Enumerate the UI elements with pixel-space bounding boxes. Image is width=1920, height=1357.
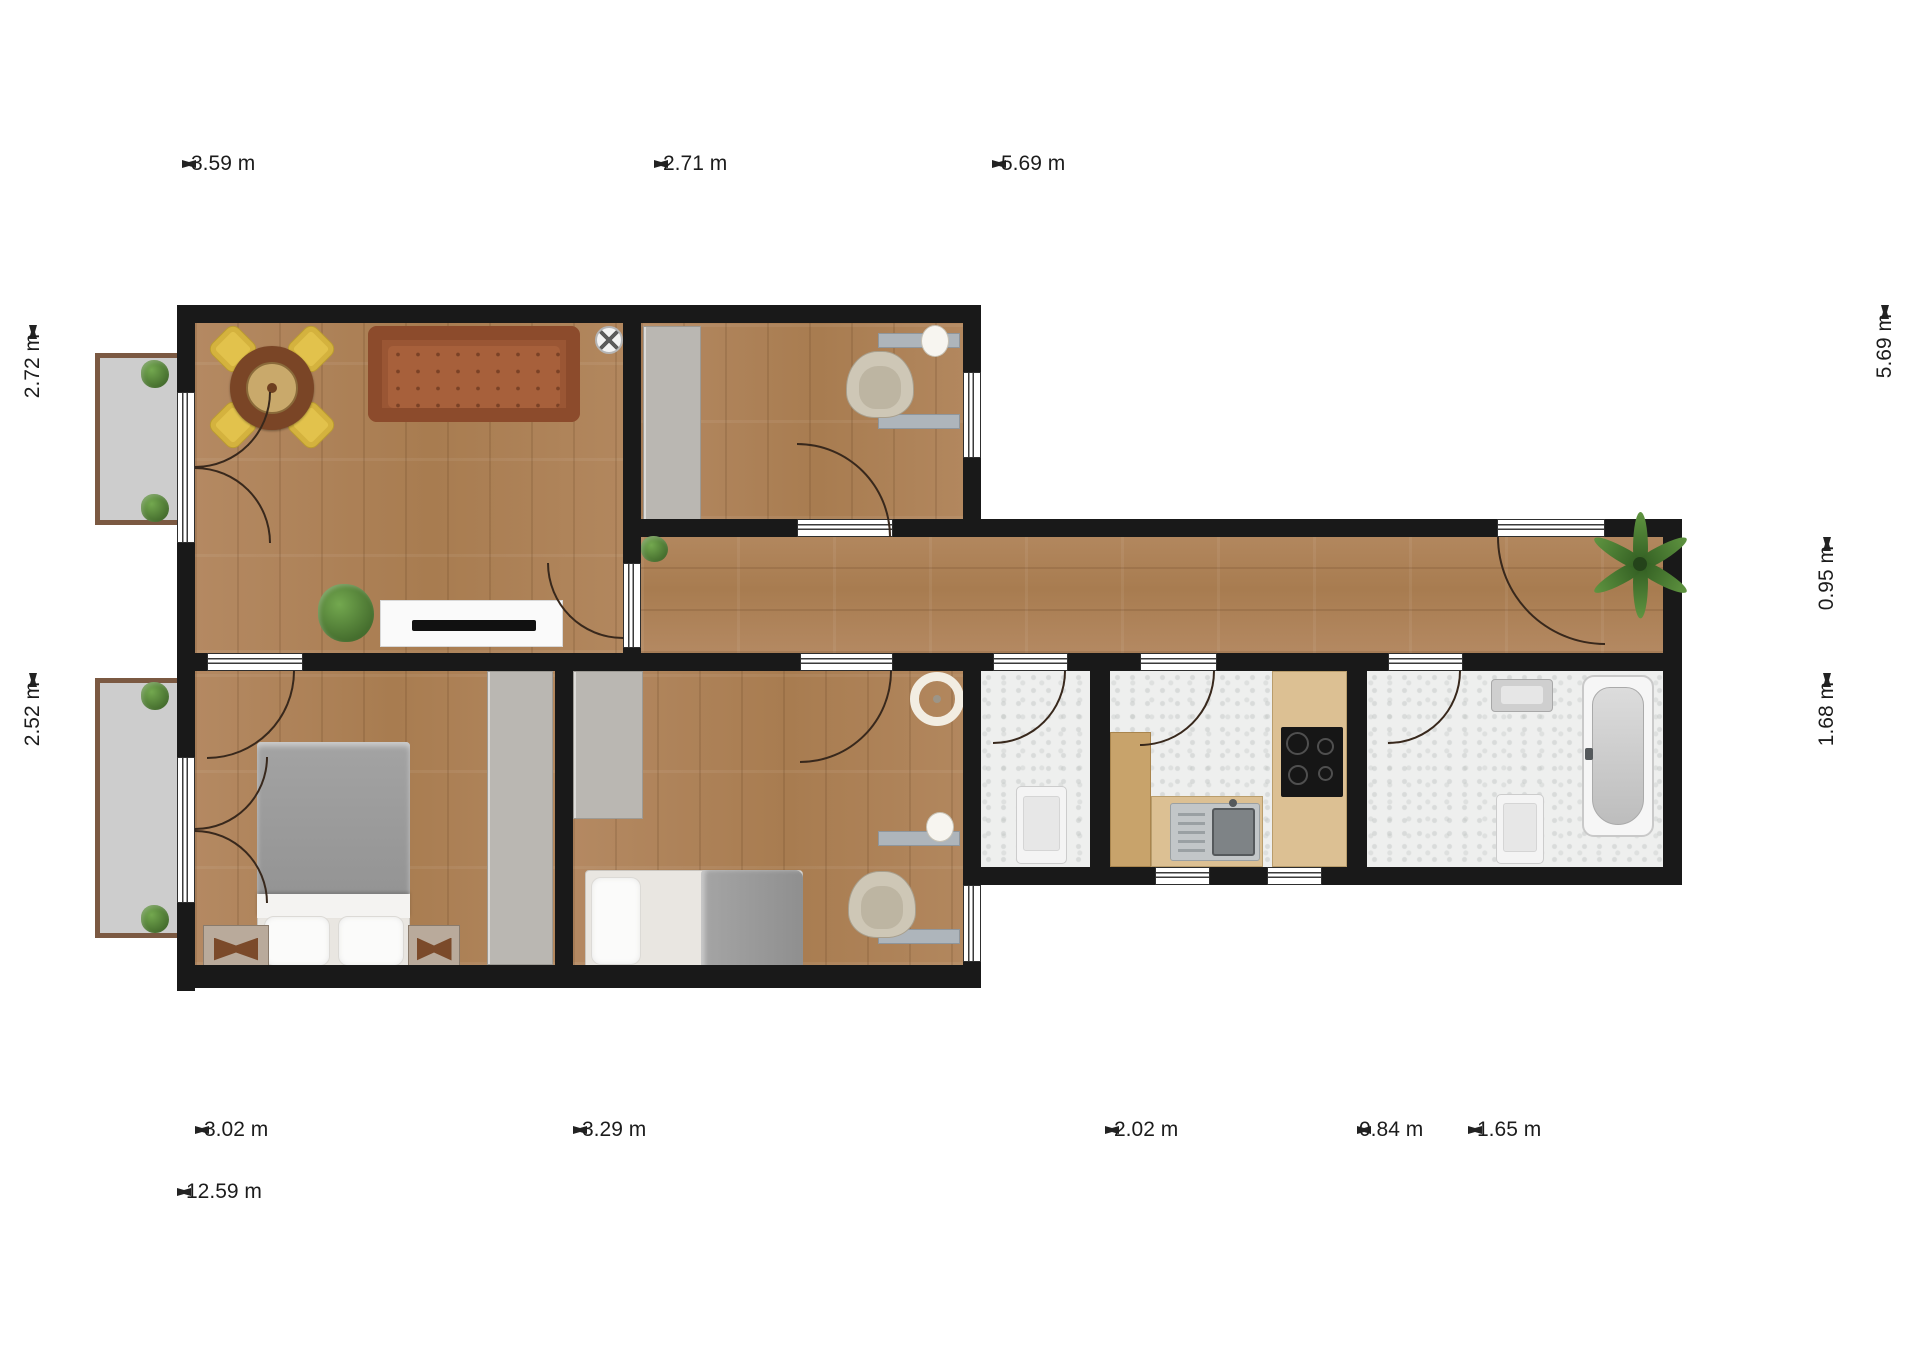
ceiling-lamp-icon bbox=[910, 672, 964, 726]
armchair bbox=[846, 351, 914, 418]
dimension-top-study: 2.71 m bbox=[654, 155, 978, 173]
armchair-cushion bbox=[861, 886, 903, 929]
floor-lamp-icon bbox=[921, 325, 949, 357]
dimension-bottom-bedroom2: 3.29 m bbox=[573, 1121, 963, 1139]
arrowhead-icon bbox=[654, 160, 668, 168]
arrowhead-icon bbox=[29, 673, 37, 687]
plant-icon bbox=[141, 360, 169, 388]
bathtub-faucet-icon bbox=[1585, 748, 1593, 760]
bedroom2-wardrobe bbox=[573, 671, 643, 819]
floor-plan: 3.59 m 2.71 m 5.69 m 2.72 m 2.52 m 0.95 … bbox=[0, 0, 1920, 1357]
plant-icon bbox=[141, 682, 169, 710]
dimension-total-width: 12.59 m bbox=[177, 1183, 1682, 1201]
arrowhead-icon bbox=[29, 325, 37, 339]
washing-machine bbox=[1496, 794, 1544, 864]
arrowhead-icon bbox=[1823, 537, 1831, 551]
dimension-right-hallway: 0.95 m bbox=[1818, 537, 1836, 653]
dimension-right-total-height: 5.69 m bbox=[1876, 305, 1894, 988]
wall bbox=[177, 543, 195, 757]
wall bbox=[177, 305, 981, 323]
washing-machine-lid bbox=[1023, 796, 1060, 851]
plant-icon bbox=[141, 905, 169, 933]
dimension-bottom-bedroom1: 3.02 m bbox=[195, 1121, 555, 1139]
entry-door bbox=[1497, 519, 1605, 537]
wall bbox=[303, 653, 800, 671]
pillow bbox=[591, 877, 641, 965]
dimension-top-living: 3.59 m bbox=[182, 155, 640, 173]
dimension-left-living: 2.72 m bbox=[24, 325, 42, 653]
sofa-seat bbox=[388, 346, 560, 408]
bathroom-door bbox=[1388, 653, 1463, 671]
bathroom-sink-bowl bbox=[1501, 686, 1543, 704]
bedroom1-door bbox=[207, 653, 303, 671]
pillow bbox=[338, 916, 404, 966]
dimension-left-bedroom: 2.52 m bbox=[24, 673, 42, 965]
burner-icon bbox=[1288, 765, 1308, 785]
living-room-hall-door bbox=[623, 563, 641, 648]
palm-plant-icon bbox=[1598, 512, 1682, 616]
arrowhead-icon bbox=[182, 160, 196, 168]
arrowhead-icon bbox=[1881, 305, 1889, 319]
bathroom-sink bbox=[1491, 679, 1553, 712]
bedroom2-door bbox=[800, 653, 893, 671]
arrowhead-icon bbox=[1105, 1126, 1119, 1134]
kitchen-counter-left bbox=[1110, 732, 1151, 867]
balcony-bedroom bbox=[95, 678, 178, 938]
wall bbox=[1463, 653, 1682, 671]
balcony-door-bedroom1 bbox=[177, 757, 195, 903]
ceiling-light-icon bbox=[595, 326, 623, 354]
dim-label: 12.59 m bbox=[177, 1180, 271, 1204]
burner-icon bbox=[1318, 766, 1333, 781]
wall bbox=[893, 519, 1497, 537]
wall bbox=[177, 653, 207, 671]
palm-center bbox=[1633, 557, 1647, 571]
wall bbox=[1068, 653, 1140, 671]
floor-lamp-icon bbox=[926, 812, 954, 842]
washing-machine-lid bbox=[1503, 803, 1538, 852]
plant-icon bbox=[318, 584, 374, 642]
nightstand-decor bbox=[214, 938, 259, 961]
wall bbox=[1090, 671, 1110, 867]
kitchen-window bbox=[1267, 867, 1322, 885]
wc-door bbox=[993, 653, 1068, 671]
ceiling-lamp-center bbox=[933, 695, 941, 703]
wall bbox=[641, 519, 797, 537]
bedroom1-wardrobe bbox=[487, 671, 553, 965]
plant-icon bbox=[641, 536, 668, 562]
single-bed-blanket bbox=[701, 870, 803, 973]
kitchen-door bbox=[1140, 653, 1217, 671]
wall bbox=[177, 305, 195, 392]
wall bbox=[623, 305, 641, 563]
dimension-right-kitchenrow: 1.68 m bbox=[1818, 673, 1836, 867]
faucet-icon bbox=[1229, 799, 1237, 807]
double-bed-sheet bbox=[257, 894, 410, 918]
study-wardrobe bbox=[643, 326, 701, 520]
tv bbox=[412, 620, 536, 631]
wall bbox=[1210, 867, 1267, 885]
nightstand-decor bbox=[417, 938, 452, 961]
arrowhead-icon bbox=[1357, 1126, 1371, 1134]
dimension-bottom-small: 0.84 m bbox=[1357, 1121, 1458, 1139]
wall bbox=[1347, 671, 1367, 867]
sink-drainer bbox=[1178, 813, 1205, 853]
arrowhead-icon bbox=[573, 1126, 587, 1134]
burner-icon bbox=[1286, 732, 1309, 755]
wall bbox=[963, 305, 981, 372]
wall bbox=[555, 671, 573, 988]
arrowhead-icon bbox=[195, 1126, 209, 1134]
armchair-cushion bbox=[859, 366, 901, 409]
arrowhead-icon bbox=[992, 160, 1006, 168]
dimension-bottom-kitchen: 2.02 m bbox=[1105, 1121, 1347, 1139]
wall bbox=[1217, 653, 1388, 671]
arrowhead-icon bbox=[1468, 1126, 1482, 1134]
bedroom2-window bbox=[963, 885, 981, 962]
dimension-bottom-bath: 1.65 m bbox=[1468, 1121, 1666, 1139]
arrowhead-icon bbox=[177, 1188, 191, 1196]
sofa bbox=[368, 326, 580, 422]
balcony-door-living-room bbox=[177, 392, 195, 543]
bathtub-basin bbox=[1592, 687, 1644, 825]
wall bbox=[893, 653, 993, 671]
kitchen-window bbox=[1155, 867, 1210, 885]
pillow bbox=[264, 916, 330, 966]
study-window bbox=[963, 372, 981, 458]
sink-basin bbox=[1212, 808, 1255, 856]
burner-icon bbox=[1317, 738, 1334, 755]
washing-machine bbox=[1016, 786, 1067, 864]
dimension-top-wing: 5.69 m bbox=[992, 155, 1680, 173]
plant-icon bbox=[141, 494, 169, 522]
wall bbox=[1322, 867, 1682, 885]
arrowhead-icon bbox=[1823, 673, 1831, 687]
wall bbox=[963, 671, 981, 885]
wall bbox=[981, 867, 1155, 885]
double-bed-duvet bbox=[257, 742, 410, 894]
armchair bbox=[848, 871, 916, 938]
wall bbox=[177, 965, 981, 988]
